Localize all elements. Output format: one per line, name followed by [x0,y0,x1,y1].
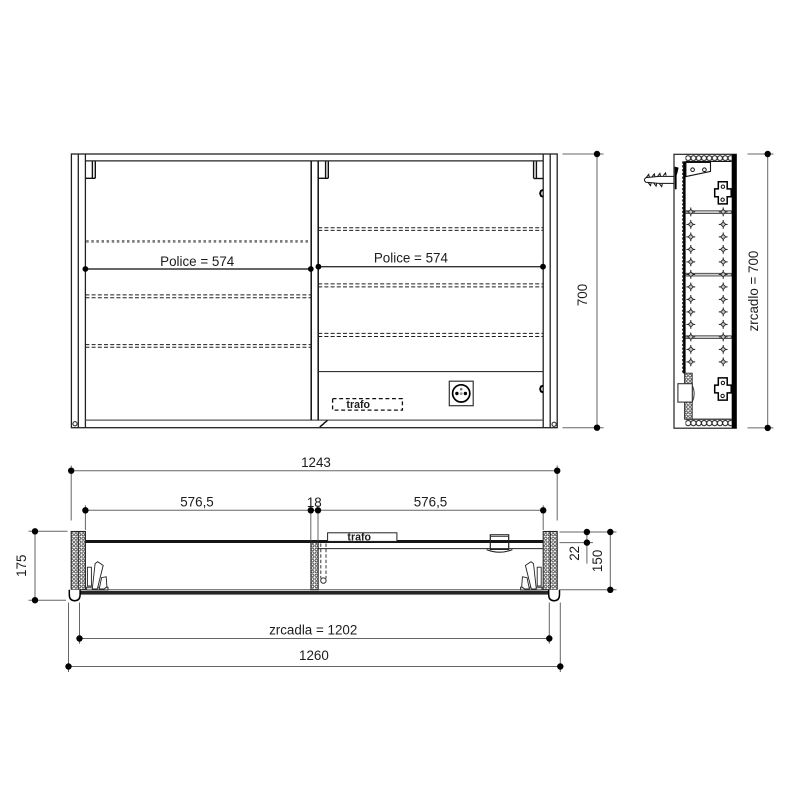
svg-text:18: 18 [307,495,322,510]
svg-text:22: 22 [567,546,582,561]
svg-text:trafo: trafo [346,399,370,411]
svg-text:zrcadlo = 700: zrcadlo = 700 [746,251,761,332]
svg-text:150: 150 [590,550,605,572]
svg-text:576,5: 576,5 [414,494,448,509]
svg-text:Police = 574: Police = 574 [160,254,235,269]
svg-text:Police = 574: Police = 574 [374,251,449,266]
svg-text:1243: 1243 [301,455,331,470]
svg-text:trafo: trafo [347,532,371,544]
svg-text:175: 175 [14,555,29,577]
svg-text:576,5: 576,5 [180,494,214,509]
svg-text:700: 700 [575,284,590,306]
svg-text:zrcadla = 1202: zrcadla = 1202 [269,623,357,638]
svg-text:1260: 1260 [299,648,329,663]
